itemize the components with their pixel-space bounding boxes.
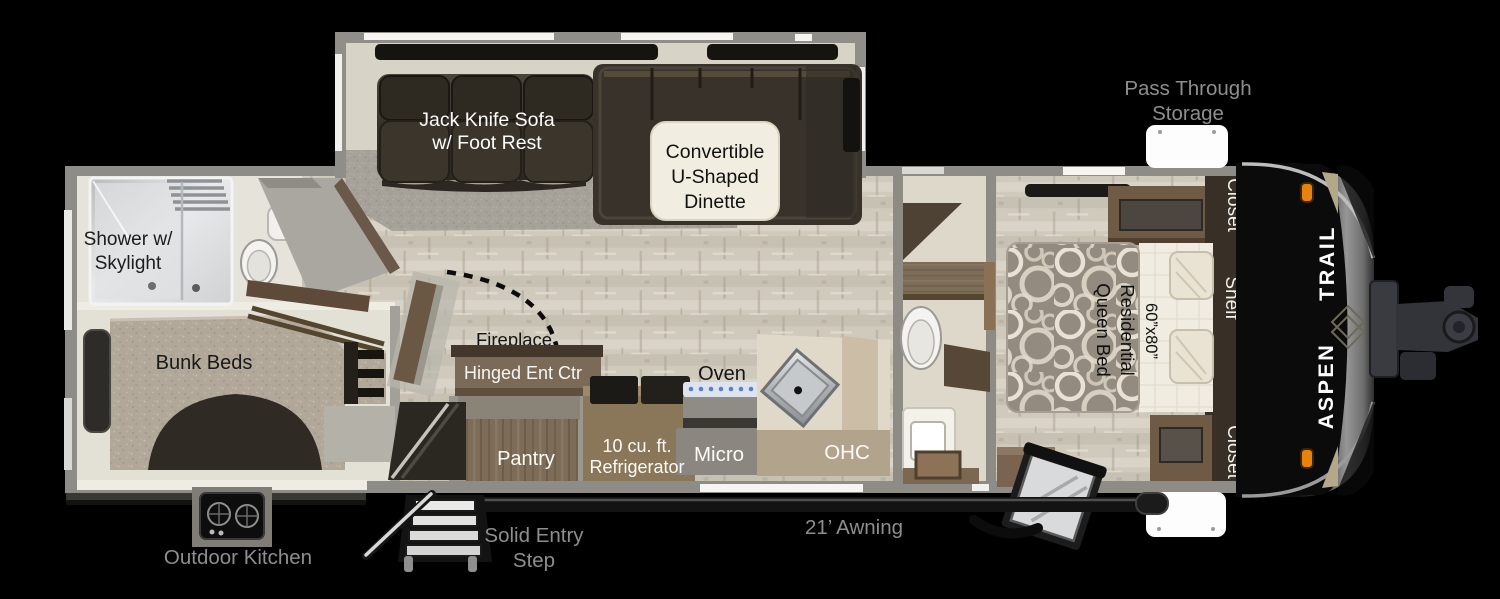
svg-text:Bunk Beds: Bunk Beds (156, 352, 253, 374)
svg-text:TRAIL: TRAIL (1315, 225, 1339, 301)
svg-text:Queen Bed: Queen Bed (1093, 283, 1114, 377)
svg-text:10 cu. ft.: 10 cu. ft. (602, 436, 671, 456)
svg-text:Step: Step (513, 549, 555, 572)
svg-text:OHC: OHC (824, 441, 870, 464)
svg-text:Storage: Storage (1152, 102, 1224, 125)
svg-text:Outdoor Kitchen: Outdoor Kitchen (164, 546, 312, 569)
svg-text:Micro: Micro (694, 443, 744, 466)
svg-text:Solid Entry: Solid Entry (484, 524, 584, 547)
svg-text:Residential: Residential (1117, 284, 1138, 376)
svg-text:60”x80”: 60”x80” (1142, 303, 1160, 359)
svg-text:Skylight: Skylight (95, 253, 162, 274)
svg-text:Oven: Oven (698, 363, 746, 385)
svg-text:Dinette: Dinette (684, 191, 746, 213)
svg-text:w/ Foot Rest: w/ Foot Rest (431, 132, 542, 154)
svg-text:ASPEN: ASPEN (1314, 343, 1338, 430)
svg-text:21’ Awning: 21’ Awning (805, 516, 903, 539)
svg-text:Shower w/: Shower w/ (84, 229, 173, 250)
svg-text:Jack Knife Sofa: Jack Knife Sofa (419, 109, 555, 131)
svg-text:Pass Through: Pass Through (1124, 77, 1251, 100)
svg-text:Convertible: Convertible (666, 141, 765, 163)
svg-text:Pantry: Pantry (497, 448, 555, 470)
svg-text:U-Shaped: U-Shaped (671, 166, 759, 188)
svg-text:Refrigerator: Refrigerator (589, 457, 684, 477)
svg-text:Hinged Ent Ctr: Hinged Ent Ctr (464, 363, 582, 383)
